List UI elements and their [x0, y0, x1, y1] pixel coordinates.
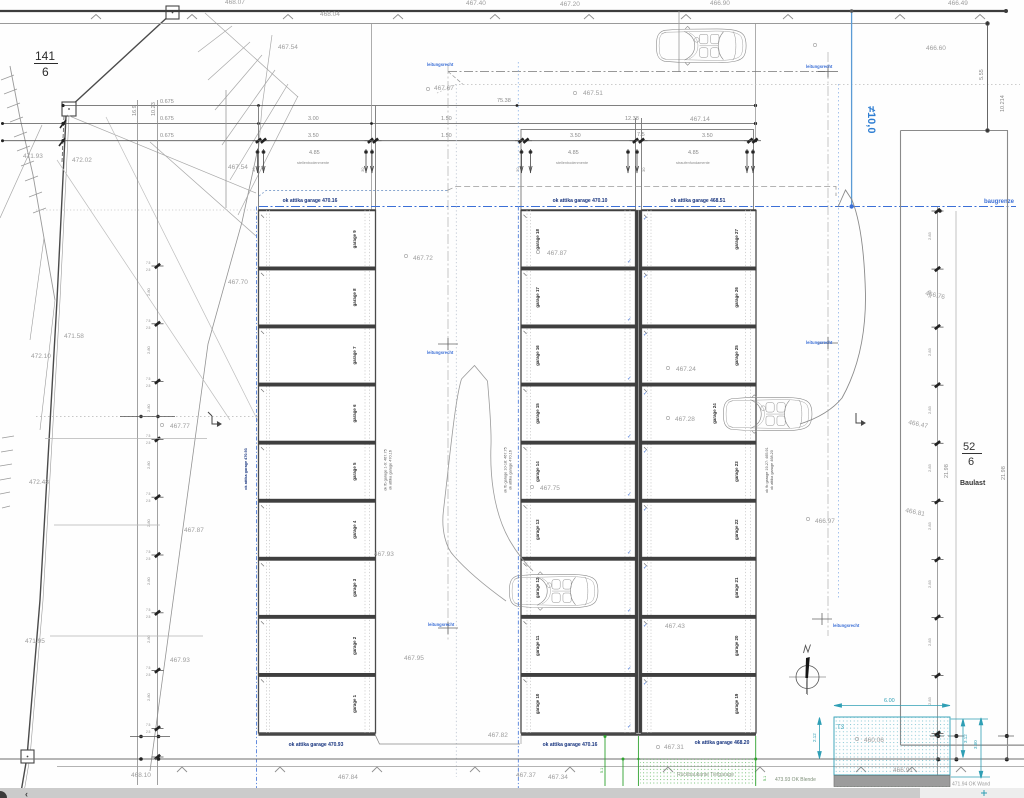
- svg-text:3.50: 3.50: [570, 133, 581, 139]
- svg-text:0.675: 0.675: [160, 133, 174, 139]
- svg-text:468.10: 468.10: [131, 772, 151, 779]
- svg-text:21.98: 21.98: [944, 464, 950, 478]
- svg-text:3.50: 3.50: [702, 133, 713, 139]
- svg-text:stellenbodenmente: stellenbodenmente: [556, 161, 588, 165]
- svg-text:10.214: 10.214: [1000, 95, 1006, 112]
- svg-text:7.5: 7.5: [146, 261, 151, 265]
- svg-text:460.06: 460.06: [864, 737, 884, 744]
- svg-text:468.07: 468.07: [225, 0, 245, 6]
- svg-text:ok attika garage 470.93: ok attika garage 470.93: [244, 448, 248, 490]
- svg-text:467.84: 467.84: [338, 774, 358, 781]
- svg-text:garage 15: garage 15: [535, 403, 540, 424]
- svg-text:✓: ✓: [643, 623, 648, 629]
- svg-text:✓: ✓: [643, 565, 648, 571]
- svg-text:garage 10: garage 10: [535, 693, 540, 714]
- svg-text:472.10: 472.10: [31, 353, 51, 360]
- svg-text:✓: ✓: [643, 332, 648, 338]
- svg-text:✓: ✓: [627, 434, 632, 440]
- svg-text:garage 20: garage 20: [734, 635, 739, 656]
- svg-text:garage 13: garage 13: [535, 519, 540, 540]
- svg-text:garage 7: garage 7: [352, 346, 357, 365]
- svg-text:2.5: 2.5: [146, 615, 151, 619]
- svg-text:2.5: 2.5: [146, 441, 151, 445]
- svg-text:5.55: 5.55: [979, 69, 985, 80]
- svg-text:7.5: 7.5: [146, 550, 151, 554]
- svg-text:5.1: 5.1: [763, 776, 767, 781]
- svg-text:garage 1: garage 1: [352, 694, 357, 713]
- svg-text:7.5: 7.5: [146, 492, 151, 496]
- svg-text:garage 8: garage 8: [352, 288, 357, 307]
- svg-text:2.83: 2.83: [927, 696, 932, 705]
- svg-text:467.67: 467.67: [434, 85, 454, 92]
- svg-text:4.85: 4.85: [309, 150, 320, 156]
- svg-text:stellenbodenmente: stellenbodenmente: [297, 161, 329, 165]
- svg-text:straufenfundamente: straufenfundamente: [676, 161, 710, 165]
- svg-text:ok attika garage 468.20: ok attika garage 468.20: [770, 450, 774, 490]
- svg-text:garage 9: garage 9: [352, 230, 357, 249]
- svg-text:garage 16: garage 16: [535, 345, 540, 366]
- svg-text:garage 12: garage 12: [535, 577, 540, 598]
- svg-text:466.91: 466.91: [893, 767, 913, 774]
- svg-text:ok attika garage 468.20: ok attika garage 468.20: [695, 740, 750, 746]
- svg-text:1.50: 1.50: [441, 116, 452, 122]
- svg-text:garage 3: garage 3: [352, 578, 357, 597]
- svg-text:466.97: 466.97: [815, 518, 835, 525]
- svg-text:467.43: 467.43: [665, 623, 685, 630]
- svg-text:2.12: 2.12: [812, 733, 817, 742]
- svg-text:0.675: 0.675: [160, 99, 174, 105]
- svg-text:garage 22: garage 22: [734, 519, 739, 540]
- svg-text:ok fb garage 1-9: 467.75: ok fb garage 1-9: 467.75: [384, 449, 388, 490]
- svg-text:garage 14: garage 14: [535, 461, 540, 482]
- svg-text:2.5: 2.5: [146, 499, 151, 503]
- svg-text:2.83: 2.83: [927, 231, 932, 240]
- svg-text:✓: ✓: [627, 550, 632, 556]
- svg-text:1.50: 1.50: [441, 133, 452, 139]
- svg-text:ok attika garage 470.10: ok attika garage 470.10: [553, 198, 608, 204]
- svg-text:5.1: 5.1: [600, 768, 604, 773]
- svg-text:2.83: 2.83: [927, 463, 932, 472]
- svg-text:467.37: 467.37: [516, 772, 536, 779]
- svg-text:2.80: 2.80: [146, 576, 151, 585]
- svg-text:3.50: 3.50: [308, 133, 319, 139]
- svg-text:garage 6: garage 6: [352, 404, 357, 423]
- svg-text:30: 30: [251, 167, 256, 172]
- svg-text:75.38: 75.38: [497, 98, 511, 104]
- svg-text:2.83: 2.83: [927, 405, 932, 414]
- svg-text:467.54: 467.54: [278, 44, 298, 51]
- svg-text:garage 21: garage 21: [734, 577, 739, 598]
- svg-text:471.94 OK Wand: 471.94 OK Wand: [952, 782, 990, 788]
- svg-text:472.48: 472.48: [29, 479, 49, 486]
- svg-text:467.72: 467.72: [413, 255, 433, 262]
- svg-text:7.5: 7.5: [637, 132, 645, 138]
- svg-text:467.51: 467.51: [583, 90, 603, 97]
- svg-text:‹: ‹: [25, 789, 28, 798]
- svg-text:✓: ✓: [643, 216, 648, 222]
- svg-text:473.93 OK Blende: 473.93 OK Blende: [775, 777, 816, 783]
- svg-text:466.60: 466.60: [926, 45, 946, 52]
- svg-text:✓: ✓: [643, 449, 648, 455]
- svg-text:✓: ✓: [627, 317, 632, 323]
- svg-text:leitungsrecht: leitungsrecht: [833, 623, 860, 628]
- svg-text:467.28: 467.28: [675, 416, 695, 423]
- svg-text:✓: ✓: [643, 274, 648, 280]
- svg-text:4.85: 4.85: [688, 150, 699, 156]
- svg-text:2.80: 2.80: [146, 287, 151, 296]
- svg-text:baugrenze: baugrenze: [984, 199, 1015, 205]
- svg-text:467.31: 467.31: [664, 744, 684, 751]
- svg-text:✓: ✓: [643, 391, 648, 397]
- svg-text:4.85: 4.85: [568, 150, 579, 156]
- svg-text:garage 25: garage 25: [734, 345, 739, 366]
- svg-text:garage 19: garage 19: [734, 693, 739, 714]
- svg-text:ok fb garage 19-27: 465.91: ok fb garage 19-27: 465.91: [765, 447, 769, 493]
- svg-text:30: 30: [641, 167, 646, 172]
- svg-text:2.83: 2.83: [927, 347, 932, 356]
- svg-text:21.98: 21.98: [1001, 466, 1007, 480]
- svg-text:467.87: 467.87: [547, 250, 567, 257]
- svg-text:6.00: 6.00: [884, 698, 895, 704]
- svg-text:141: 141: [35, 49, 55, 63]
- svg-text:471.58: 471.58: [64, 333, 84, 340]
- svg-text:7.5: 7.5: [146, 434, 151, 438]
- svg-text:12.38: 12.38: [625, 116, 639, 122]
- svg-text:30: 30: [515, 167, 520, 172]
- svg-text:10.23: 10.23: [151, 102, 157, 116]
- svg-text:7.5: 7.5: [146, 319, 151, 323]
- svg-text:✓: ✓: [627, 259, 632, 265]
- svg-text:466.49: 466.49: [948, 0, 968, 7]
- svg-text:garage 24: garage 24: [712, 403, 717, 424]
- svg-text:6: 6: [968, 456, 974, 468]
- svg-text:7.5: 7.5: [146, 723, 151, 727]
- svg-text:garage 5: garage 5: [352, 462, 357, 481]
- svg-text:leitungsrecht: leitungsrecht: [806, 340, 833, 345]
- svg-text:garage 18: garage 18: [535, 228, 540, 249]
- svg-text:✓: ✓: [643, 681, 648, 687]
- svg-text:ok attika garage 470.16: ok attika garage 470.16: [543, 742, 598, 748]
- svg-text:3.60: 3.60: [973, 740, 978, 749]
- svg-text:7.5: 7.5: [146, 666, 151, 670]
- svg-text:garage 27: garage 27: [734, 228, 739, 249]
- svg-text:✓: ✓: [627, 666, 632, 672]
- svg-text:leitungsrecht: leitungsrecht: [427, 350, 454, 355]
- svg-text:2.80: 2.80: [146, 460, 151, 469]
- svg-text:467.95: 467.95: [404, 655, 424, 662]
- svg-text:467.93: 467.93: [374, 551, 394, 558]
- svg-text:≠10,0: ≠10,0: [865, 106, 877, 133]
- svg-text:2.5: 2.5: [146, 326, 151, 330]
- svg-text:467.34: 467.34: [548, 774, 568, 781]
- svg-text:✓: ✓: [643, 507, 648, 513]
- svg-text:Rückbaukante Tiefgarage: Rückbaukante Tiefgarage: [677, 772, 734, 778]
- svg-text:467.40: 467.40: [466, 0, 486, 7]
- svg-text:471.95: 471.95: [25, 638, 45, 645]
- svg-text:leitungsrecht: leitungsrecht: [427, 62, 454, 67]
- svg-text:467.75: 467.75: [540, 485, 560, 492]
- svg-text:3.12: 3.12: [963, 734, 968, 743]
- svg-text:ok fb garage 10-18: 467.75: ok fb garage 10-18: 467.75: [504, 447, 508, 493]
- svg-text:✓: ✓: [627, 724, 632, 730]
- svg-text:3.00: 3.00: [308, 116, 319, 122]
- svg-text:467.87: 467.87: [184, 527, 204, 534]
- svg-text:ok attika garage 470.93: ok attika garage 470.93: [289, 742, 344, 748]
- svg-text:467.24: 467.24: [676, 366, 696, 373]
- svg-text:467.20: 467.20: [560, 1, 580, 8]
- svg-text:2.5: 2.5: [146, 673, 151, 677]
- svg-text:garage 23: garage 23: [734, 461, 739, 482]
- svg-text:467.82: 467.82: [488, 732, 508, 739]
- svg-text:0.675: 0.675: [160, 116, 174, 122]
- svg-text:467.70: 467.70: [228, 279, 248, 286]
- svg-text:leitungsrecht: leitungsrecht: [806, 64, 833, 69]
- svg-text:✓: ✓: [627, 608, 632, 614]
- svg-text:2.80: 2.80: [146, 345, 151, 354]
- svg-text:2.80: 2.80: [146, 692, 151, 701]
- svg-text:467.14: 467.14: [690, 116, 710, 123]
- svg-text:30: 30: [360, 167, 365, 172]
- svg-text:2.83: 2.83: [927, 637, 932, 646]
- svg-text:leitungsrecht: leitungsrecht: [428, 622, 455, 627]
- svg-text:2.83: 2.83: [927, 521, 932, 530]
- svg-text:ok attika garage 468.51: ok attika garage 468.51: [671, 198, 726, 204]
- svg-text:471.93: 471.93: [23, 153, 43, 160]
- svg-text:ok attika garage 470.16: ok attika garage 470.16: [509, 450, 513, 490]
- svg-text:7.5: 7.5: [146, 608, 151, 612]
- svg-text:Baulast: Baulast: [960, 480, 986, 487]
- svg-text:7.5: 7.5: [146, 377, 151, 381]
- svg-text:2.5: 2.5: [146, 268, 151, 272]
- svg-text:T3: T3: [837, 725, 845, 731]
- svg-text:6: 6: [42, 65, 49, 79]
- svg-text:2.80: 2.80: [146, 518, 151, 527]
- svg-text:472.02: 472.02: [72, 157, 92, 164]
- svg-text:ok attika garage 470.16: ok attika garage 470.16: [283, 198, 338, 204]
- svg-text:✓: ✓: [627, 376, 632, 382]
- svg-text:466.90: 466.90: [710, 0, 730, 7]
- svg-text:467.93: 467.93: [170, 657, 190, 664]
- svg-text:garage 17: garage 17: [535, 287, 540, 308]
- svg-text:ok attika garage 470.16: ok attika garage 470.16: [389, 450, 393, 490]
- svg-text:2.5: 2.5: [146, 557, 151, 561]
- svg-text:2.83: 2.83: [927, 579, 932, 588]
- svg-text:467.54: 467.54: [228, 164, 248, 171]
- svg-text:468.04: 468.04: [320, 11, 340, 18]
- svg-text:467.77: 467.77: [170, 423, 190, 430]
- svg-text:52: 52: [963, 441, 975, 453]
- svg-text:2.5: 2.5: [146, 730, 151, 734]
- svg-text:✓: ✓: [627, 492, 632, 498]
- svg-text:2.5: 2.5: [146, 384, 151, 388]
- svg-text:garage 26: garage 26: [734, 287, 739, 308]
- svg-text:garage 11: garage 11: [535, 635, 540, 656]
- svg-text:garage 4: garage 4: [352, 520, 357, 539]
- svg-text:garage 2: garage 2: [352, 636, 357, 655]
- svg-text:2.80: 2.80: [146, 403, 151, 412]
